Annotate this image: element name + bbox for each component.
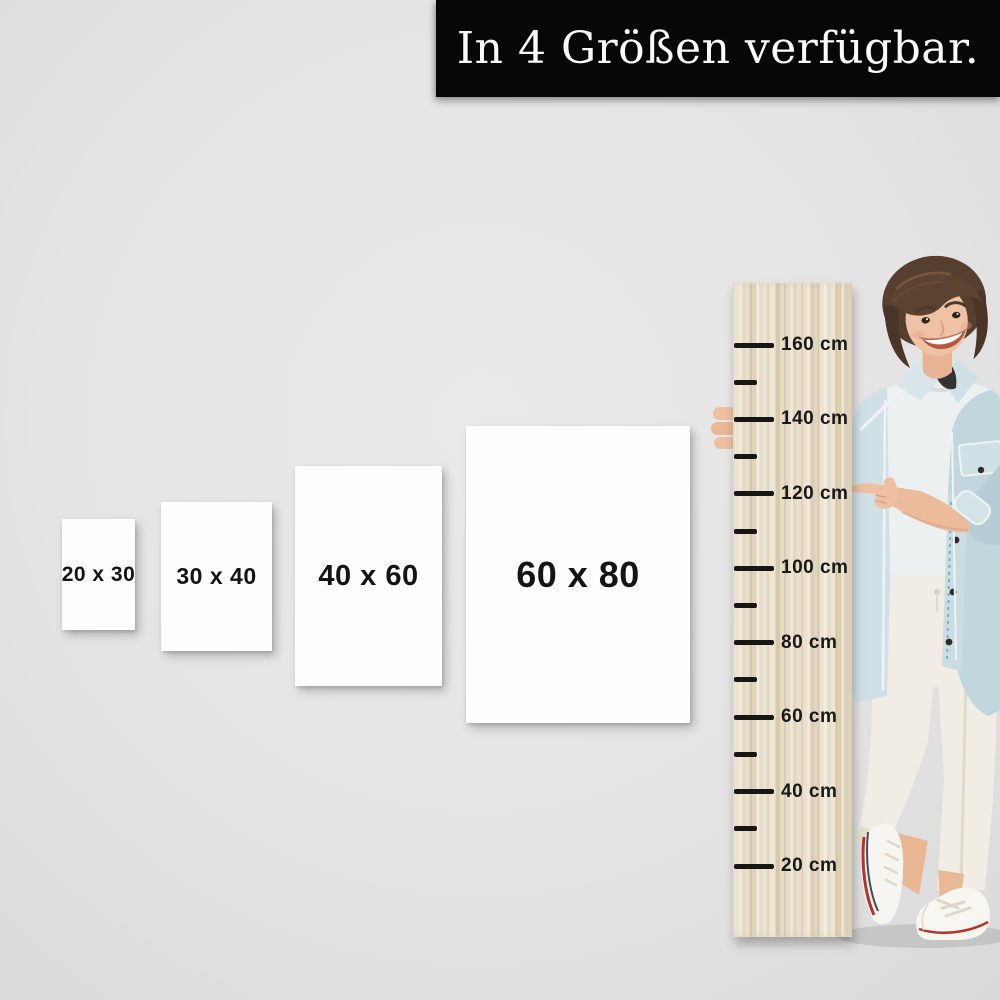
- size-label: 30 x 40: [176, 563, 256, 590]
- tick-label: 80 cm: [781, 632, 837, 654]
- banner: In 4 Größen verfügbar.: [436, 0, 1000, 97]
- tick-label: 40 cm: [781, 781, 837, 803]
- tick-minor: [734, 380, 757, 385]
- growth-ruler: 160 cm140 cm120 cm100 cm80 cm60 cm40 cm2…: [733, 283, 852, 937]
- tick-minor: [734, 603, 757, 608]
- tick-major: [734, 715, 774, 720]
- size-card: 30 x 40: [161, 502, 272, 651]
- size-label: 60 x 80: [516, 554, 640, 596]
- tick-label: 140 cm: [781, 408, 848, 430]
- tick-label: 60 cm: [781, 706, 837, 728]
- crossed-foot: [861, 823, 928, 924]
- tick-minor: [734, 454, 757, 459]
- tick-major: [734, 640, 774, 645]
- tick-major: [734, 491, 774, 496]
- tick-label: 160 cm: [781, 334, 848, 356]
- tick-minor: [734, 826, 757, 831]
- tick-label: 120 cm: [781, 483, 848, 505]
- tick-major: [734, 343, 774, 348]
- tick-minor: [734, 677, 757, 682]
- size-card: 60 x 80: [466, 426, 690, 723]
- tick-major: [734, 417, 774, 422]
- tick-major: [734, 789, 774, 794]
- size-card: 20 x 30: [62, 519, 135, 630]
- tick-major: [734, 566, 774, 571]
- tick-label: 20 cm: [781, 855, 837, 877]
- size-comparison-infographic: In 4 Größen verfügbar. 20 x 3030 x 4040 …: [0, 0, 1000, 1000]
- tick-label: 100 cm: [781, 557, 848, 579]
- tick-minor: [734, 752, 757, 757]
- size-card: 40 x 60: [295, 466, 442, 686]
- model-head: [876, 249, 994, 379]
- size-label: 20 x 30: [62, 563, 136, 587]
- size-label: 40 x 60: [318, 560, 418, 593]
- tick-minor: [734, 529, 757, 534]
- banner-title: In 4 Größen verfügbar.: [457, 23, 979, 74]
- tick-major: [734, 864, 774, 869]
